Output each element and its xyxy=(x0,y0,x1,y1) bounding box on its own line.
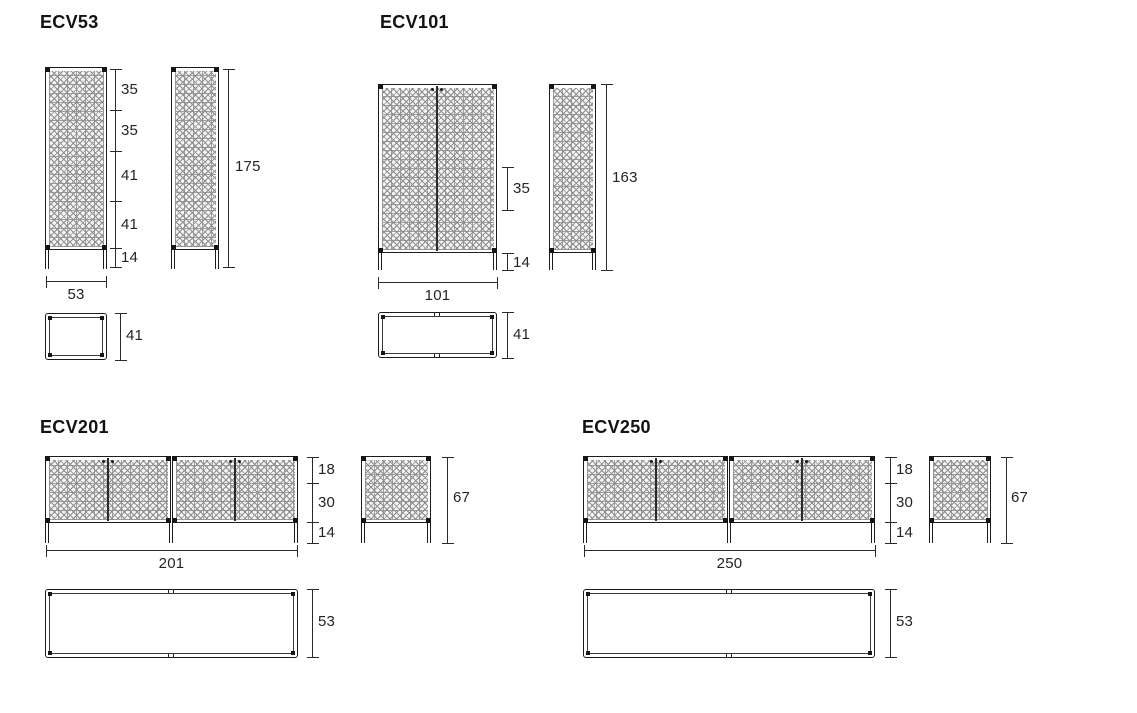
door-knob-icon xyxy=(111,460,114,463)
ecv201-front-module-right xyxy=(172,456,298,523)
ecv53-front-view xyxy=(45,67,107,250)
door-split-line xyxy=(107,458,109,521)
corner-bracket-icon xyxy=(172,456,177,461)
corner-bracket-icon xyxy=(583,456,588,461)
leg xyxy=(361,523,365,543)
ecv201-width-dimension-line xyxy=(46,550,297,551)
ecv101-shelf-dimension-line xyxy=(507,167,508,210)
corner-bracket-icon xyxy=(45,456,50,461)
corner-bracket-icon xyxy=(293,456,298,461)
ecv201-depth-dimension-line xyxy=(312,589,313,657)
corner-fitting-icon xyxy=(48,592,52,596)
corner-bracket-icon xyxy=(986,456,991,461)
ecv101-side-view xyxy=(549,84,596,253)
door-split-line xyxy=(655,458,657,521)
module-seam-mark xyxy=(726,589,732,593)
door-seam-mark xyxy=(434,312,440,316)
dim-label-height: 67 xyxy=(1011,490,1028,505)
ecv201-side-view xyxy=(361,456,431,523)
corner-bracket-icon xyxy=(171,67,176,72)
corner-fitting-icon xyxy=(381,315,385,319)
lattice-pattern xyxy=(49,71,104,247)
corner-fitting-icon xyxy=(48,353,52,357)
lattice-pattern xyxy=(933,460,988,520)
ecv250-top-view xyxy=(583,589,875,658)
leg xyxy=(171,250,175,269)
dim-label: 30 xyxy=(896,495,913,510)
door-knob-icon xyxy=(238,460,241,463)
dim-label-depth: 41 xyxy=(126,328,143,343)
dim-label-height: 175 xyxy=(235,159,261,174)
ecv201-front-module-left xyxy=(45,456,171,523)
ecv201-height-dimension-line xyxy=(312,457,313,543)
lattice-pattern xyxy=(175,71,216,247)
corner-fitting-icon xyxy=(490,315,494,319)
top-view-inner-frame xyxy=(382,316,493,354)
corner-bracket-icon xyxy=(426,456,431,461)
dim-label-height: 67 xyxy=(453,490,470,505)
corner-bracket-icon xyxy=(729,456,734,461)
corner-fitting-icon xyxy=(868,592,872,596)
leg xyxy=(45,523,49,543)
ecv101-front-view xyxy=(378,84,497,253)
dim-label-width: 250 xyxy=(584,556,875,571)
module-seam-mark xyxy=(726,654,732,658)
corner-fitting-icon xyxy=(586,651,590,655)
leg xyxy=(294,523,298,543)
ecv250-front-module-right xyxy=(729,456,875,523)
product-title-ecv53: ECV53 xyxy=(40,13,99,31)
dim-label-height: 163 xyxy=(612,170,638,185)
ecv101-width-dimension-line xyxy=(378,282,497,283)
leg xyxy=(45,250,49,269)
dim-label: 41 xyxy=(121,217,138,232)
leg xyxy=(427,523,431,543)
top-view-inner-frame xyxy=(49,593,294,654)
ecv53-side-view xyxy=(171,67,219,250)
leg xyxy=(592,253,596,270)
corner-bracket-icon xyxy=(361,456,366,461)
corner-fitting-icon xyxy=(48,651,52,655)
corner-bracket-icon xyxy=(870,456,875,461)
leg xyxy=(215,250,219,269)
door-knob-icon xyxy=(229,460,232,463)
leg xyxy=(378,253,382,270)
dim-label-width: 201 xyxy=(46,556,297,571)
corner-fitting-icon xyxy=(100,316,104,320)
spec-sheet: ECV53 35 35 41 41 14 53 175 4 xyxy=(0,0,1137,713)
corner-bracket-icon xyxy=(378,84,383,89)
module-seam-mark xyxy=(168,654,174,658)
leg xyxy=(871,523,875,543)
ecv250-total-height-dimension-line xyxy=(1006,457,1007,543)
top-view-inner-frame xyxy=(49,317,103,356)
dim-label-width: 53 xyxy=(46,287,106,302)
door-split-line xyxy=(436,86,438,251)
dim-label: 18 xyxy=(318,462,335,477)
ecv53-total-height-dimension-line xyxy=(228,69,229,267)
ecv101-depth-dimension-line xyxy=(507,312,508,358)
dim-label: 30 xyxy=(318,495,335,510)
dim-label-depth: 41 xyxy=(513,327,530,342)
ecv250-front-module-left xyxy=(583,456,728,523)
ecv250-width-dimension-line xyxy=(584,550,875,551)
ecv201-total-height-dimension-line xyxy=(447,457,448,543)
corner-bracket-icon xyxy=(723,456,728,461)
leg xyxy=(929,523,933,543)
corner-bracket-icon xyxy=(549,84,554,89)
dim-label: 35 xyxy=(121,82,138,97)
corner-fitting-icon xyxy=(586,592,590,596)
corner-fitting-icon xyxy=(291,592,295,596)
door-knob-icon xyxy=(805,460,808,463)
door-knob-icon xyxy=(431,88,434,91)
leg xyxy=(169,523,173,543)
corner-fitting-icon xyxy=(381,351,385,355)
door-split-line xyxy=(234,458,236,521)
dim-label: 35 xyxy=(513,181,530,196)
dim-label-width: 101 xyxy=(378,288,497,303)
leg xyxy=(727,523,731,543)
corner-bracket-icon xyxy=(102,67,107,72)
corner-fitting-icon xyxy=(291,651,295,655)
door-knob-icon xyxy=(650,460,653,463)
ecv53-depth-dimension-line xyxy=(120,313,121,360)
dim-label: 14 xyxy=(121,250,138,265)
ecv250-side-view xyxy=(929,456,991,523)
ecv53-height-dimension-line xyxy=(115,69,116,267)
dim-label: 14 xyxy=(896,525,913,540)
leg xyxy=(987,523,991,543)
corner-bracket-icon xyxy=(166,456,171,461)
lattice-pattern xyxy=(553,88,593,250)
ecv53-top-view xyxy=(45,313,107,360)
door-seam-mark xyxy=(434,354,440,358)
leg xyxy=(583,523,587,543)
leg xyxy=(493,253,497,270)
corner-bracket-icon xyxy=(492,84,497,89)
corner-bracket-icon xyxy=(45,67,50,72)
door-knob-icon xyxy=(659,460,662,463)
ecv250-depth-dimension-line xyxy=(890,589,891,657)
ecv201-top-view xyxy=(45,589,298,658)
corner-fitting-icon xyxy=(48,316,52,320)
door-knob-icon xyxy=(102,460,105,463)
dim-label-depth: 53 xyxy=(318,614,335,629)
corner-fitting-icon xyxy=(490,351,494,355)
ecv101-total-height-dimension-line xyxy=(606,84,607,270)
door-knob-icon xyxy=(440,88,443,91)
corner-bracket-icon xyxy=(591,84,596,89)
dim-label: 35 xyxy=(121,123,138,138)
ecv101-leg-dimension-line xyxy=(507,253,508,270)
ecv250-height-dimension-line xyxy=(890,457,891,543)
dim-label: 41 xyxy=(121,168,138,183)
door-split-line xyxy=(801,458,803,521)
dim-label: 14 xyxy=(318,525,335,540)
corner-bracket-icon xyxy=(929,456,934,461)
top-view-inner-frame xyxy=(587,593,871,654)
corner-fitting-icon xyxy=(868,651,872,655)
corner-fitting-icon xyxy=(100,353,104,357)
dim-label: 18 xyxy=(896,462,913,477)
leg xyxy=(103,250,107,269)
module-seam-mark xyxy=(168,589,174,593)
dim-label-depth: 53 xyxy=(896,614,913,629)
ecv53-width-dimension-line xyxy=(46,281,106,282)
product-title-ecv250: ECV250 xyxy=(582,418,651,436)
product-title-ecv201: ECV201 xyxy=(40,418,109,436)
dim-label: 14 xyxy=(513,255,530,270)
leg xyxy=(549,253,553,270)
ecv101-top-view xyxy=(378,312,497,358)
product-title-ecv101: ECV101 xyxy=(380,13,449,31)
door-knob-icon xyxy=(796,460,799,463)
lattice-pattern xyxy=(365,460,428,520)
corner-bracket-icon xyxy=(214,67,219,72)
